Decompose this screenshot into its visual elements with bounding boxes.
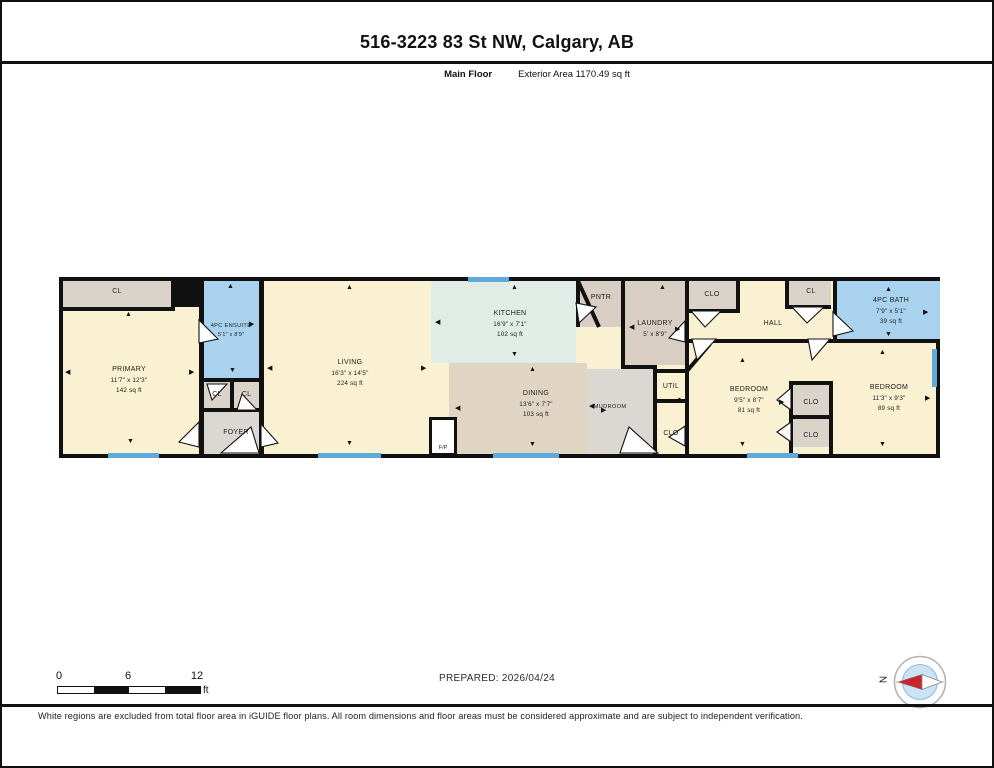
room-label-bedroom-right: BEDROOM 11'3" x 9'3" 89 sq ft — [843, 383, 935, 413]
room-label-mudroom: MUDROOM — [579, 403, 641, 412]
room-label-util: UTIL — [655, 382, 687, 393]
wall — [621, 365, 657, 369]
room-label-cl-hall: CL — [793, 287, 829, 298]
room-area: 142 sq ft — [79, 386, 179, 396]
page-title: 516-3223 83 St NW, Calgary, AB — [2, 32, 992, 53]
direction-arrow-icon: ◀ — [267, 365, 272, 372]
direction-arrow-icon: ◀ — [65, 369, 70, 376]
room-dims: 5'1" x 8'9" — [201, 331, 261, 340]
direction-arrow-icon: ▲ — [125, 311, 132, 318]
room-label-primary: PRIMARY 11'7" x 12'3" 142 sq ft — [79, 365, 179, 395]
room-area: 102 sq ft — [455, 330, 565, 340]
room-name: CL — [93, 287, 141, 298]
room-label-hall: HALL — [743, 319, 803, 330]
room-area: 103 sq ft — [481, 410, 591, 420]
scale-unit-label: ft — [203, 685, 209, 696]
room-label-kitchen: KITCHEN 16'9" x 7'1" 102 sq ft — [455, 309, 565, 339]
room-name: CLO — [688, 290, 736, 301]
compass-north-label: N — [879, 674, 890, 686]
floorplan-page: 516-3223 83 St NW, Calgary, AB Main Floo… — [0, 0, 994, 768]
wall — [576, 281, 580, 327]
prepared-date: PREPARED: 2026/04/24 — [2, 673, 992, 684]
room-label-clo-1: CLO — [795, 398, 827, 409]
room-name: CL — [793, 287, 829, 298]
direction-arrow-icon: ▼ — [879, 441, 886, 448]
room-dims: 16'9" x 7'1" — [455, 320, 565, 330]
window — [318, 453, 381, 458]
fireplace: F/P — [429, 417, 457, 456]
room-name: CL — [234, 390, 259, 401]
wall — [688, 309, 736, 313]
room-name: LIVING — [295, 358, 405, 369]
room-name: BEDROOM — [709, 385, 789, 396]
direction-arrow-icon: ▼ — [127, 438, 134, 445]
header-divider — [2, 61, 992, 64]
room-dims: 11'3" x 9'3" — [843, 394, 935, 404]
room-dims: 11'7" x 12'3" — [79, 376, 179, 386]
wall — [829, 381, 833, 454]
direction-arrow-icon: ▶ — [189, 369, 194, 376]
footer-divider — [2, 704, 992, 707]
direction-arrow-icon: ▶ — [421, 365, 426, 372]
wall — [789, 305, 831, 309]
room-label-cl-a: CL — [204, 390, 230, 401]
direction-arrow-icon: ▼ — [739, 441, 746, 448]
room-name: UTIL — [655, 382, 687, 393]
exterior-area-label: Exterior Area 1170.49 sq ft — [518, 69, 630, 80]
wall — [789, 381, 793, 454]
room-label-pantry: PNTR — [581, 293, 621, 304]
room-name: KITCHEN — [455, 309, 565, 320]
window — [108, 453, 159, 458]
room-label-clo-2: CLO — [795, 431, 827, 442]
room-name: F/P — [439, 445, 448, 451]
window — [932, 349, 937, 387]
room-label-dining: DINING 13'6" x 7'7" 103 sq ft — [481, 389, 591, 419]
room-label-cl-b: CL — [234, 390, 259, 401]
scale-bar — [57, 686, 201, 694]
room-dims: 16'3" x 14'5" — [295, 369, 405, 379]
room-label-foyer: FOYER — [210, 428, 262, 439]
wall — [789, 381, 829, 385]
room-dims: 13'6" x 7'7" — [481, 400, 591, 410]
room-area: 39 sq ft — [851, 317, 931, 327]
floorplan-drawing: CL PRIMARY 11'7" x 12'3" 142 sq ft 4PC E… — [59, 277, 940, 458]
wall — [736, 281, 740, 313]
room-dims: 9'5" x 8'7" — [709, 396, 789, 406]
wall — [689, 339, 940, 343]
room-name: DINING — [481, 389, 591, 400]
room-label-living: LIVING 16'3" x 14'5" 224 sq ft — [295, 358, 405, 388]
room-area: 224 sq ft — [295, 379, 405, 389]
room-name: BEDROOM — [843, 383, 935, 394]
scale-segment — [165, 687, 201, 693]
room-label-ensuite: 4PC ENSUITE 5'1" x 8'9" — [201, 322, 261, 339]
direction-arrow-icon: ▲ — [739, 357, 746, 364]
room-label-cl-left: CL — [93, 287, 141, 298]
room-name: CLO — [795, 398, 827, 409]
room-name: CL — [204, 390, 230, 401]
floor-label: Main Floor — [444, 69, 492, 80]
wall — [204, 408, 259, 412]
room-label-bedroom-mid: BEDROOM 9'5" x 8'7" 81 sq ft — [709, 385, 789, 415]
room-label-clo-util: CLO — [655, 429, 687, 440]
disclaimer-text: White regions are excluded from total fl… — [38, 711, 803, 721]
room-label-clo-hall: CLO — [688, 290, 736, 301]
compass-icon — [892, 654, 948, 710]
room-area: 89 sq ft — [843, 404, 935, 414]
room-name: MUDROOM — [579, 403, 641, 412]
wall — [789, 415, 829, 419]
subheader: Main Floor Exterior Area 1170.49 sq ft — [2, 69, 992, 80]
room-pantry — [580, 281, 621, 327]
room-area: 81 sq ft — [709, 406, 789, 416]
room-name: HALL — [743, 319, 803, 330]
room-name: PRIMARY — [79, 365, 179, 376]
scale-segment — [94, 687, 130, 693]
wall — [63, 307, 175, 311]
room-name: 4PC BATH — [851, 296, 931, 307]
wall — [199, 281, 204, 454]
room-name: PNTR — [581, 293, 621, 304]
direction-arrow-icon: ▼ — [346, 440, 353, 447]
room-label-laundry: LAUNDRY 5' x 8'9" — [623, 319, 687, 340]
scale-segment — [129, 687, 165, 693]
scale-segment — [58, 687, 94, 693]
direction-arrow-icon: ▲ — [879, 349, 886, 356]
room-dims: 7'9" x 5'1" — [851, 307, 931, 317]
room-name: FOYER — [210, 428, 262, 439]
room-name: CLO — [795, 431, 827, 442]
room-name: 4PC ENSUITE — [201, 322, 261, 331]
room-name: CLO — [655, 429, 687, 440]
room-dims: 5' x 8'9" — [623, 330, 687, 340]
room-label-bath: 4PC BATH 7'9" x 5'1" 39 sq ft — [851, 296, 931, 326]
wall — [833, 281, 837, 339]
room-name: LAUNDRY — [623, 319, 687, 330]
direction-arrow-icon: ▲ — [346, 284, 353, 291]
